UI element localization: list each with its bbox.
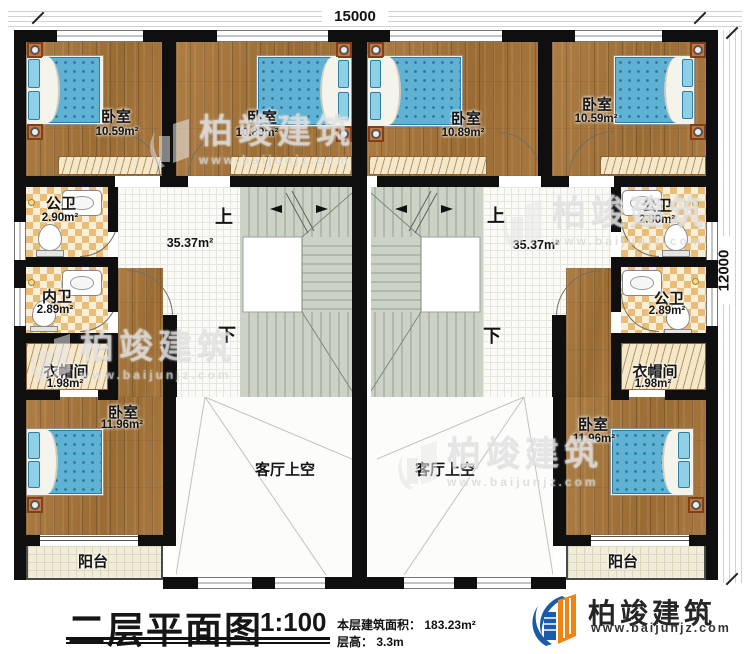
wall [614,176,706,187]
wall [689,535,718,546]
wall [160,176,188,187]
floor-area-value: 183.23m² [424,618,475,632]
wall [14,390,60,400]
wall [553,397,566,537]
plan-scale: 1:100 [260,607,327,638]
room-label: 客厅上空 [415,459,475,480]
room-label: 阳台 [608,551,638,572]
floor-area-info: 本层建筑面积： 183.23m² [337,616,476,633]
wall [611,333,718,343]
dimension-line [729,30,730,583]
window [198,577,252,589]
sliding-door [40,536,138,541]
nightstand-lamp [27,124,43,140]
nightstand-lamp [27,42,43,58]
bed-pillow [28,91,40,120]
room-area: 11.96m² [573,433,615,445]
void-lines-left [176,397,352,575]
window [390,30,502,42]
floor-height-info: 层高： 3.3m [337,633,404,650]
wall [611,187,621,232]
toilet-tank [30,326,58,332]
bed-pillow [28,461,40,488]
room-label: 卧室 [247,107,277,128]
room-area: 10.89m² [442,127,485,139]
wall [611,257,718,267]
wall [98,390,118,400]
bed-pillow [370,92,381,120]
wall [611,267,621,312]
room-area: 11.96m² [101,419,143,431]
void-lines-right [367,397,553,575]
wall [163,397,176,537]
nightstand-lamp [336,126,352,142]
window [14,288,26,326]
room-area: 1.98m² [635,378,671,390]
brand-url: www.baijunjz.com [591,621,731,635]
floor-height-label: 层高： [337,635,373,649]
window [275,577,325,589]
wall [14,333,118,343]
staircase-right [371,187,483,397]
light-fixture [28,199,35,206]
wall [252,577,275,589]
room-label: 公卫 [642,195,672,216]
dimension-tick [726,27,739,40]
wall [325,577,385,589]
window [14,222,26,260]
wall [108,187,118,232]
brand-logo-icon [528,590,584,650]
bed-pillow [678,461,690,488]
room-area: 10.89m² [236,127,279,139]
floor-area-label: 本层建筑面积： [337,618,421,632]
light-fixture [28,279,35,286]
plan-title: 二层平面图 [68,600,263,654]
dimension-tick [32,12,45,25]
dimension-right: 12000 [716,237,733,305]
room-area: 2.89m² [37,304,73,316]
wall [531,577,566,589]
wall [541,176,569,187]
floor-height-value: 3.3m [376,635,403,649]
bed-pillow [678,432,690,459]
wall [108,267,118,312]
nightstand-lamp [368,42,384,58]
sliding-door [591,536,689,541]
room-label: 公卫 [46,193,76,214]
window [404,577,454,589]
toilet-tank [662,250,690,257]
stair-up-label: 上 [487,202,505,228]
title-underline [66,642,330,644]
light-fixture [692,278,699,285]
wall [552,315,566,397]
bed-pillow [682,59,693,87]
wall [108,343,118,390]
dimension-line [8,26,742,27]
wall [230,176,352,187]
bed-sheet [662,430,678,494]
bed-sheet [320,57,338,125]
room-label: 卧室 [578,414,608,435]
nightstand-lamp [688,497,704,513]
bed-pillow [370,60,381,88]
bed-pillow [28,432,40,459]
nightstand-lamp [336,42,352,58]
wall [665,390,718,400]
wall [328,30,390,42]
light-fixture [692,200,699,207]
wall [538,42,552,176]
dimension-top: 15000 [322,8,388,25]
nightstand-lamp [368,126,384,142]
wall [14,535,40,546]
window [217,30,328,42]
nightstand-lamp [690,124,706,140]
stair-down-label: 下 [483,322,501,348]
wardrobe [600,156,706,175]
wall [14,257,118,267]
wall [143,30,217,42]
toilet [664,224,688,251]
toilet [38,224,62,251]
wall [163,577,198,589]
room-area: 2.89m² [649,305,685,317]
title-underline [66,637,330,640]
wall [502,30,575,42]
dimension-line [723,30,724,583]
wardrobe [369,156,487,175]
wall [553,535,591,546]
dimension-line [735,30,736,583]
wall [14,176,115,187]
nightstand-lamp [27,497,43,513]
room-area: 10.59m² [96,126,139,138]
room-label: 阳台 [78,551,108,572]
room-area: 35.37m² [167,236,214,250]
wall [454,577,477,589]
room-label: 客厅上空 [255,459,315,480]
wall [163,315,177,397]
bed-pillow [338,92,349,120]
room-area: 35.37m² [513,238,560,252]
dimension-tick [726,573,739,586]
toilet-tank [36,250,64,257]
bed-pillow [682,91,693,119]
stair-up-label: 上 [215,203,233,229]
window [706,222,718,260]
bed-pillow [338,60,349,88]
room-area: 1.98m² [47,378,83,390]
nightstand-lamp [690,42,706,58]
wall [352,42,367,588]
room-area: 10.59m² [575,113,618,125]
room-area: 2.90m² [639,214,675,226]
bed-pillow [28,59,40,88]
staircase-left [240,187,352,397]
window [706,288,718,326]
wall [377,176,499,187]
window [575,30,662,42]
floor-plan-canvas: 15000 12000 [0,0,750,654]
window [477,577,531,589]
stair-down-label: 下 [218,321,236,347]
wardrobe [230,156,352,175]
room-area: 2.90m² [42,212,78,224]
room-label: 卧室 [582,94,612,115]
dimension-tick [694,12,707,25]
wall [162,42,176,176]
wall [611,390,629,400]
bed-sheet [664,57,682,123]
wall [611,343,621,390]
wall [138,535,176,546]
wall [385,577,404,589]
dimension-line [741,30,742,583]
room-label: 卧室 [451,108,481,129]
room-label: 卧室 [101,106,131,127]
window [57,30,143,42]
